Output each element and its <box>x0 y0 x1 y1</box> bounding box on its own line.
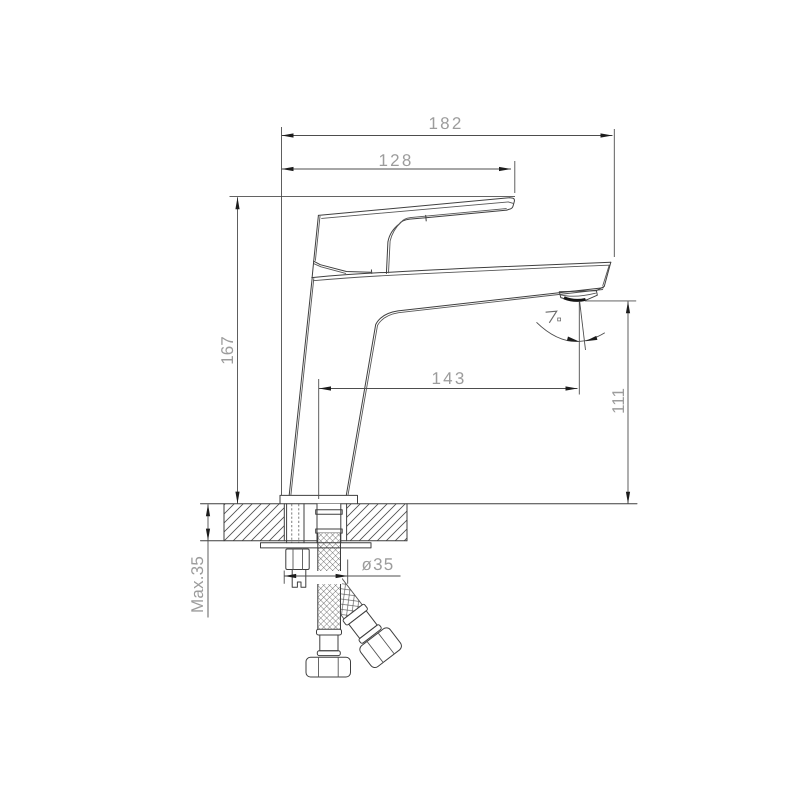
svg-text:143: 143 <box>432 369 467 388</box>
svg-text:Max.35: Max.35 <box>188 556 207 613</box>
svg-text:111: 111 <box>609 388 628 414</box>
svg-text:167: 167 <box>218 336 237 364</box>
svg-text:128: 128 <box>379 151 414 170</box>
svg-text:ø35: ø35 <box>362 555 395 574</box>
svg-text:182: 182 <box>429 114 464 133</box>
